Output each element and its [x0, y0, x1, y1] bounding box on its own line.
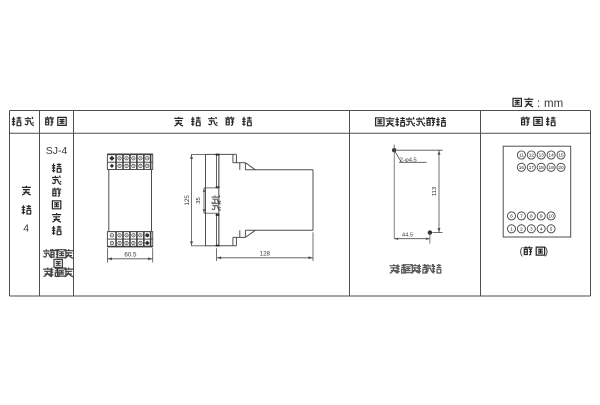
- svg-text:7: 7: [520, 214, 523, 219]
- svg-text:11: 11: [519, 153, 524, 158]
- svg-text:12: 12: [529, 153, 535, 158]
- svg-text:8: 8: [530, 214, 533, 219]
- svg-text:16: 16: [519, 165, 525, 170]
- svg-text:): ): [545, 246, 549, 258]
- svg-text::: :: [537, 98, 540, 110]
- svg-text:6: 6: [510, 214, 513, 219]
- svg-text:60.5: 60.5: [124, 252, 137, 259]
- svg-text:4: 4: [23, 223, 29, 235]
- svg-text:mm: mm: [544, 98, 563, 110]
- svg-text:1: 1: [510, 226, 513, 231]
- svg-text:2: 2: [520, 226, 523, 231]
- svg-text:9: 9: [540, 214, 543, 219]
- svg-text:20: 20: [558, 165, 564, 170]
- svg-text:17: 17: [529, 165, 535, 170]
- svg-text:15: 15: [558, 153, 564, 158]
- svg-text:19: 19: [548, 165, 554, 170]
- svg-text:113: 113: [432, 187, 438, 196]
- svg-text:14: 14: [548, 153, 554, 158]
- svg-text:35: 35: [196, 197, 202, 203]
- svg-text:10: 10: [548, 214, 554, 219]
- svg-text:4: 4: [540, 226, 543, 231]
- svg-text:2-φ4.5: 2-φ4.5: [400, 157, 417, 163]
- svg-text:3: 3: [530, 226, 533, 231]
- svg-text:13: 13: [539, 153, 545, 158]
- svg-text:128: 128: [260, 251, 271, 258]
- svg-text:SJ-4: SJ-4: [46, 145, 68, 157]
- svg-text:125: 125: [184, 195, 191, 206]
- svg-text:44.5: 44.5: [402, 232, 413, 238]
- svg-text:(: (: [520, 246, 524, 258]
- svg-text:5: 5: [550, 226, 553, 231]
- svg-text:18: 18: [539, 165, 545, 170]
